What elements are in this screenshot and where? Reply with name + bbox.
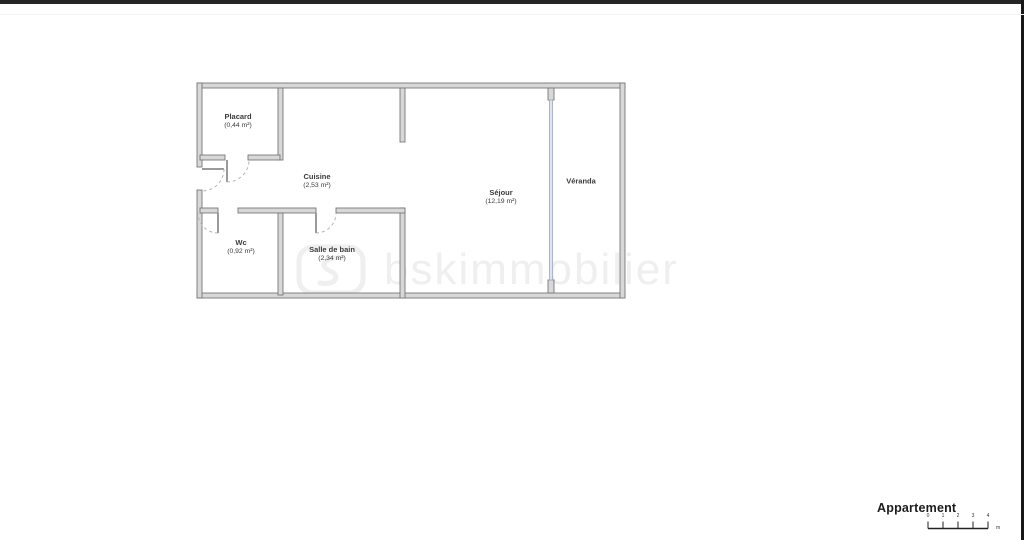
- room-label-veranda: Véranda: [566, 177, 596, 186]
- room-name: Séjour: [485, 188, 516, 197]
- wall-outer-bottom: [197, 293, 625, 298]
- room-name: Cuisine: [303, 172, 331, 181]
- glazed-wall-veranda: [550, 100, 553, 280]
- wall-hall-bath-2: [238, 208, 316, 213]
- room-area: (2,34 m²): [309, 254, 355, 263]
- wall-hall-bath-1: [200, 208, 218, 213]
- room-name: Salle de bain: [309, 245, 355, 254]
- room-name: Véranda: [566, 177, 596, 186]
- room-name: Placard: [224, 112, 252, 121]
- floor-plan: [0, 0, 1024, 540]
- wall-placard-right: [278, 88, 283, 160]
- scale-tick-4: 4: [983, 513, 993, 519]
- scale-tick-3: 3: [968, 513, 978, 519]
- wall-veranda-stub-bottom: [548, 280, 554, 293]
- room-area: (2,53 m²): [303, 181, 331, 190]
- bath-door-swing-arc: [316, 213, 336, 233]
- wall-outer-left-lower: [197, 190, 202, 298]
- wall-wc-bath: [278, 213, 283, 295]
- wall-hall-bath-3: [336, 208, 405, 213]
- room-label-cuisine: Cuisine (2,53 m²): [303, 172, 331, 190]
- room-label-sejour: Séjour (12,19 m²): [485, 188, 516, 206]
- wall-veranda-stub-top: [548, 88, 554, 100]
- scale-bar: 0 1 2 3 4 m: [920, 513, 1010, 535]
- wall-placard-bottom-right: [248, 155, 280, 160]
- scale-unit-label: m: [996, 525, 1000, 531]
- room-label-placard: Placard (0,44 m²): [224, 112, 252, 130]
- doors-group: [198, 160, 336, 233]
- wall-outer-left-upper: [197, 83, 202, 167]
- room-area: (0,44 m²): [224, 121, 252, 130]
- scale-tick-2: 2: [953, 513, 963, 519]
- wall-placard-bottom-left: [200, 155, 225, 160]
- wall-cuisine-sejour-stub: [400, 88, 405, 142]
- placard-door-swing-arc: [227, 160, 249, 182]
- room-area: (0,92 m²): [227, 247, 255, 256]
- entrance-door-swing-arc: [202, 169, 224, 191]
- scale-tick-1: 1: [938, 513, 948, 519]
- wall-outer-top: [197, 83, 625, 88]
- wall-bath-sejour: [400, 208, 405, 298]
- room-name: Wc: [227, 238, 255, 247]
- room-label-wc: Wc (0,92 m²): [227, 238, 255, 256]
- room-area: (12,19 m²): [485, 197, 516, 206]
- scale-tick-0: 0: [923, 513, 933, 519]
- walls-group: [197, 83, 625, 298]
- scale-bar-lines: [920, 513, 1010, 535]
- wall-outer-right: [620, 83, 625, 298]
- room-label-salle-de-bain: Salle de bain (2,34 m²): [309, 245, 355, 263]
